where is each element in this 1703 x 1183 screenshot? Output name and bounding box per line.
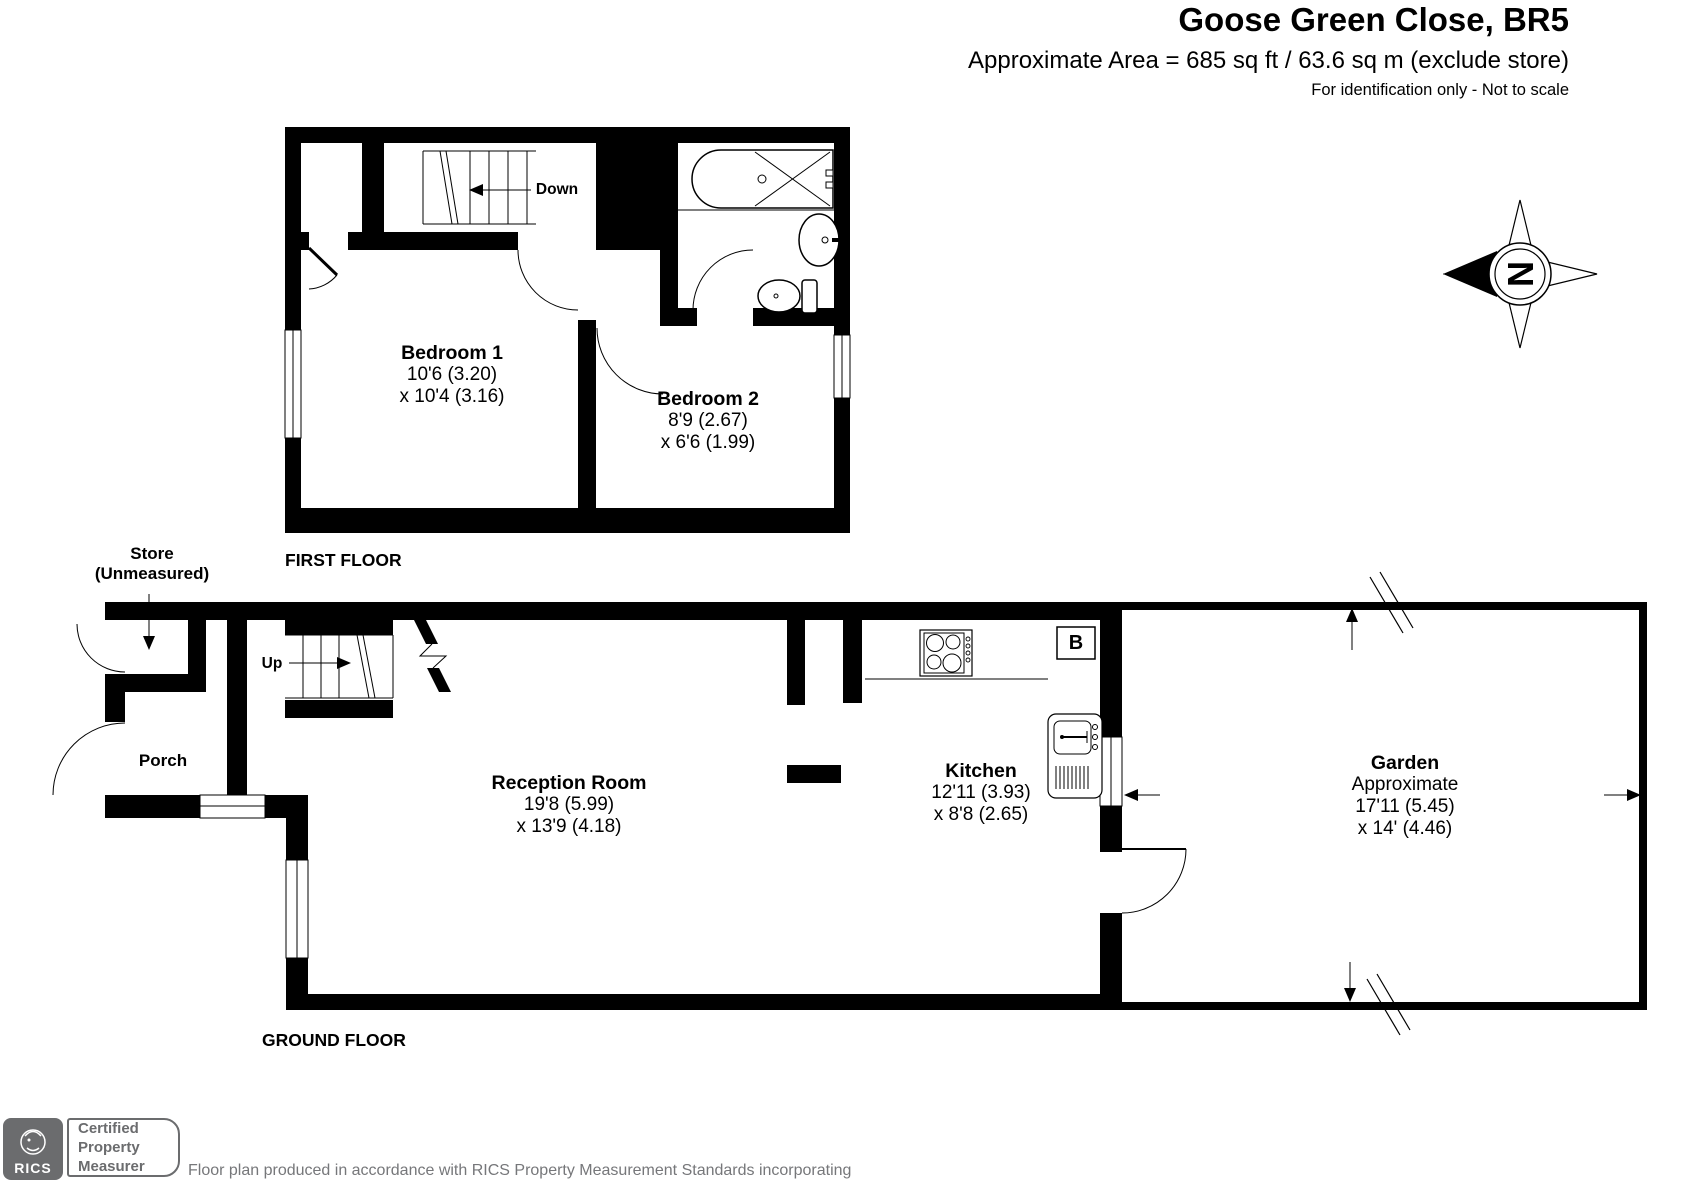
store-label-line1: Store — [95, 544, 209, 564]
room-dim: 17'11 (5.45) — [1352, 796, 1459, 818]
up-arrow — [289, 657, 351, 669]
bathtub-icon — [692, 150, 833, 208]
room-dim: x 10'4 (3.16) — [399, 386, 504, 408]
kitchen-access-arrow — [1124, 789, 1160, 801]
rics-logo: RICS — [3, 1118, 63, 1180]
room-dim: Approximate — [1352, 774, 1459, 796]
room-label-bedroom-2: Bedroom 2 8'9 (2.67) x 6'6 (1.99) — [657, 388, 759, 454]
window — [285, 330, 301, 438]
room-label-reception: Reception Room 19'8 (5.99) x 13'9 (4.18) — [492, 772, 647, 838]
room-dim: x 8'8 (2.65) — [931, 804, 1030, 826]
down-label: Down — [536, 181, 578, 199]
page-title: Goose Green Close, BR5 — [968, 0, 1569, 40]
entrance-door — [414, 620, 451, 692]
boiler-label: B — [1069, 632, 1083, 655]
window — [200, 795, 265, 818]
hob-icon — [920, 630, 972, 676]
floorplan-page: N Goose Green Close, BR5 Approximate Are… — [0, 0, 1703, 1183]
compass-rose: N — [1443, 200, 1597, 348]
room-dim: x 6'6 (1.99) — [657, 432, 759, 454]
room-label-bedroom-1: Bedroom 1 10'6 (3.20) x 10'4 (3.16) — [399, 342, 504, 408]
room-dim: 8'9 (2.67) — [657, 410, 759, 432]
garden-bottom-arrow — [1344, 962, 1356, 1002]
room-name: Bedroom 2 — [657, 388, 759, 410]
scale-disclaimer: For identification only - Not to scale — [968, 80, 1569, 100]
footer-line-1: Floor plan produced in accordance with R… — [188, 1160, 851, 1182]
up-label: Up — [262, 655, 283, 673]
room-label-kitchen: Kitchen 12'11 (3.93) x 8'8 (2.65) — [931, 760, 1030, 826]
footer-disclaimer: Floor plan produced in accordance with R… — [188, 1116, 851, 1183]
header: Goose Green Close, BR5 Approximate Area … — [968, 0, 1569, 100]
room-dim: x 14' (4.46) — [1352, 818, 1459, 840]
porch-label: Porch — [139, 751, 187, 771]
floorplan-canvas: N — [0, 0, 1703, 1183]
room-dim: 12'11 (3.93) — [931, 782, 1030, 804]
badge-line: Property — [78, 1138, 178, 1157]
room-name: Kitchen — [931, 760, 1030, 782]
kitchen-sink-icon — [1048, 714, 1102, 798]
toilet-icon — [758, 280, 817, 313]
garden-top-arrow — [1346, 608, 1358, 650]
rics-lion-icon — [3, 1120, 63, 1164]
ground-floor-label: GROUND FLOOR — [262, 1030, 406, 1051]
window — [1100, 737, 1122, 806]
rics-brand-text: RICS — [3, 1160, 63, 1176]
first-floor-label: FIRST FLOOR — [285, 550, 402, 571]
certified-measurer-badge: Certified Property Measurer — [67, 1118, 180, 1177]
room-dim: 10'6 (3.20) — [399, 364, 504, 386]
room-label-garden: Garden Approximate 17'11 (5.45) x 14' (4… — [1352, 752, 1459, 840]
badge-line: Certified — [78, 1119, 178, 1138]
room-dim: 19'8 (5.99) — [492, 794, 647, 816]
store-label: Store (Unmeasured) — [95, 544, 209, 584]
compass-north-label: N — [1500, 261, 1541, 287]
room-name: Garden — [1352, 752, 1459, 774]
garden-right-arrow — [1604, 789, 1641, 801]
badge-line: Measurer — [78, 1157, 178, 1176]
down-arrow — [469, 184, 531, 196]
area-summary: Approximate Area = 685 sq ft / 63.6 sq m… — [968, 46, 1569, 76]
store-label-line2: (Unmeasured) — [95, 564, 209, 584]
window — [834, 335, 850, 398]
room-name: Reception Room — [492, 772, 647, 794]
window — [286, 860, 308, 958]
room-dim: x 13'9 (4.18) — [492, 816, 647, 838]
room-name: Bedroom 1 — [399, 342, 504, 364]
